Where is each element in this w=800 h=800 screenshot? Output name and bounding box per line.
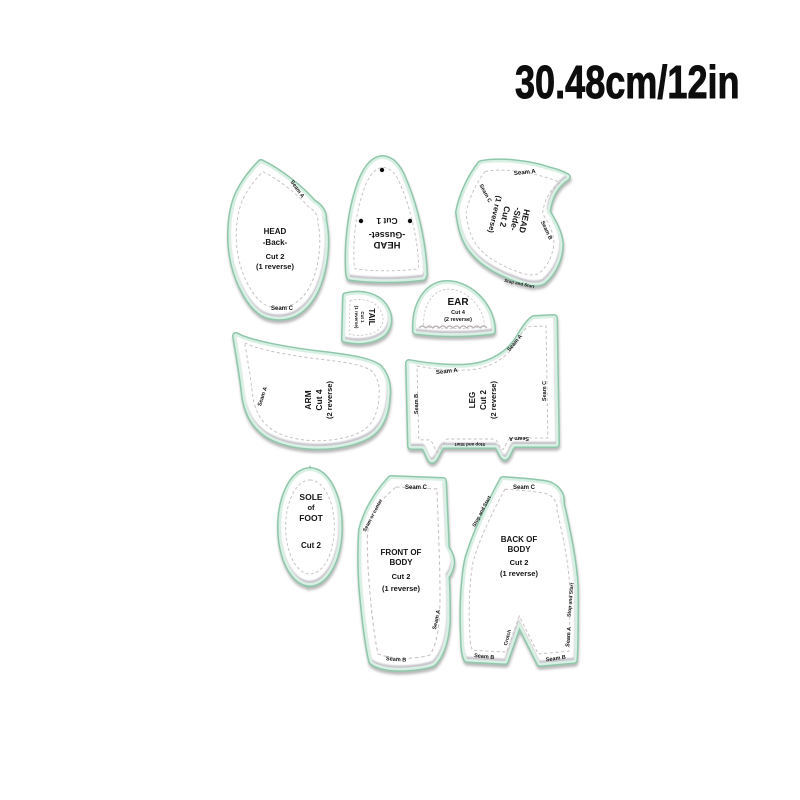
svg-text:Seam C: Seam C [405, 485, 428, 491]
svg-text:-Gusset-: -Gusset- [369, 230, 406, 240]
svg-text:FOOT: FOOT [299, 513, 323, 523]
svg-text:ARM: ARM [303, 390, 313, 409]
svg-text:Cut 1: Cut 1 [376, 216, 398, 226]
svg-text:of: of [307, 503, 315, 512]
svg-text:Cut 2: Cut 2 [479, 389, 488, 410]
svg-text:Cut 1: Cut 1 [360, 311, 365, 323]
svg-text:Cut 2: Cut 2 [266, 252, 285, 261]
svg-text:(1 reverse): (1 reverse) [500, 569, 538, 578]
svg-text:Seam C: Seam C [513, 485, 536, 491]
svg-text:(1 reverse): (1 reverse) [382, 584, 420, 593]
svg-text:EAR: EAR [447, 297, 469, 308]
svg-text:Cut 4: Cut 4 [314, 389, 324, 411]
svg-text:SOLE: SOLE [299, 492, 322, 502]
svg-text:Seam C: Seam C [542, 381, 548, 401]
svg-text:Cut 2: Cut 2 [301, 541, 322, 550]
svg-text:Seam B: Seam B [414, 394, 420, 414]
svg-text:Cut 2: Cut 2 [510, 558, 529, 567]
svg-text:FRONT OF: FRONT OF [381, 548, 422, 557]
svg-text:Cut 4: Cut 4 [451, 310, 466, 316]
svg-text:(2 reverse): (2 reverse) [489, 381, 498, 419]
svg-text:-Back-: -Back- [263, 238, 288, 247]
svg-text:(1 reverse): (1 reverse) [256, 262, 294, 271]
svg-text:Seam C: Seam C [271, 306, 294, 312]
svg-text:Stop and Start: Stop and Start [454, 442, 485, 447]
svg-text:BODY: BODY [507, 545, 531, 554]
svg-text:Seam A: Seam A [509, 435, 529, 441]
svg-text:(2 reverse): (2 reverse) [444, 317, 472, 323]
svg-text:BACK OF: BACK OF [501, 535, 538, 544]
svg-text:TAIL: TAIL [367, 308, 376, 325]
svg-text:(2 reverse): (2 reverse) [325, 381, 334, 419]
svg-text:Cut 2: Cut 2 [392, 572, 411, 581]
svg-text:LEG: LEG [468, 392, 477, 408]
svg-text:(1 reverse): (1 reverse) [354, 306, 359, 329]
svg-text:HEAD: HEAD [264, 227, 287, 236]
svg-text:BODY: BODY [389, 558, 413, 567]
